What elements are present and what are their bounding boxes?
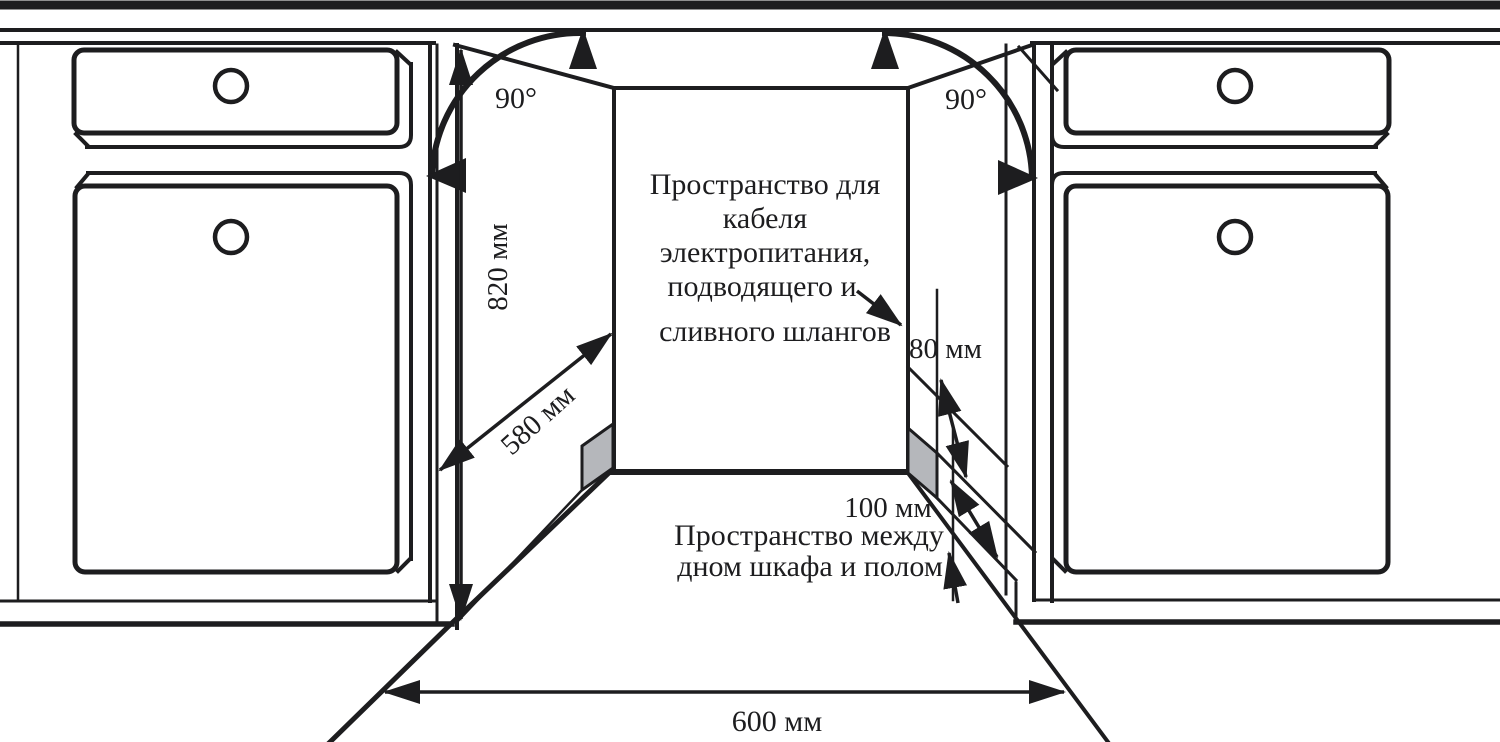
door-knob	[215, 221, 247, 253]
annotation-line: кабеля	[723, 202, 808, 235]
annotation-line: сливного шлангов	[659, 315, 891, 348]
annotation-line: Пространство между	[674, 519, 944, 552]
drawer-bevel	[1375, 134, 1387, 146]
height-dimension-label: 820 мм	[482, 223, 514, 310]
left-panel-bottom-edge	[457, 490, 582, 622]
right-cabinet	[1006, 45, 1389, 622]
door-slab-edge	[1052, 173, 1375, 559]
right-door	[1052, 173, 1388, 572]
countertop	[0, 5, 1500, 43]
door-knob	[1219, 221, 1251, 253]
angle-label-right: 90°	[945, 83, 987, 116]
annotation-line: электропитания,	[660, 236, 871, 269]
drawer-front	[74, 50, 397, 133]
floor-right-edge	[908, 473, 1108, 742]
width-dimension-label: 600 мм	[732, 705, 822, 738]
drawer-knob	[1219, 70, 1251, 102]
drawer-knob	[215, 70, 247, 102]
cable-gap-label: 80 мм	[909, 333, 982, 365]
door-bevel	[398, 559, 410, 571]
left-panel-gap-shade	[582, 424, 613, 490]
right-panel-gap-shade	[908, 428, 937, 498]
floor-space-annotation: Пространство между дном шкафа и полом	[674, 519, 944, 583]
drawer-front	[1066, 50, 1389, 133]
door-slab-edge	[88, 173, 411, 559]
left-top-drawer	[74, 50, 411, 147]
diagram-canvas: 90° 90° 820 мм 580 мм 600 мм 80 мм 100 м…	[0, 0, 1500, 742]
door-front	[1066, 186, 1388, 572]
annotation-line: дном шкафа и полом	[677, 550, 943, 583]
labels: 90° 90° 820 мм 580 мм 600 мм 80 мм 100 м…	[482, 82, 987, 738]
drawer-bevel	[76, 134, 88, 146]
right-top-drawer	[1052, 50, 1389, 147]
cable-space-annotation: Пространство для кабеля электропитания, …	[650, 168, 891, 348]
niche-top-right-diagonal	[908, 45, 1032, 88]
left-cabinet	[18, 45, 457, 628]
installation-diagram: 90° 90° 820 мм 580 мм 600 мм 80 мм 100 м…	[0, 0, 1500, 742]
left-door	[75, 173, 411, 572]
door-front	[75, 186, 397, 572]
door-bevel	[1053, 559, 1065, 571]
annotation-line: подводящего и	[667, 270, 856, 303]
niche	[330, 45, 1108, 742]
plinth	[0, 600, 1500, 624]
angle-label-left: 90°	[495, 82, 537, 115]
annotation-line: Пространство для	[650, 168, 881, 201]
